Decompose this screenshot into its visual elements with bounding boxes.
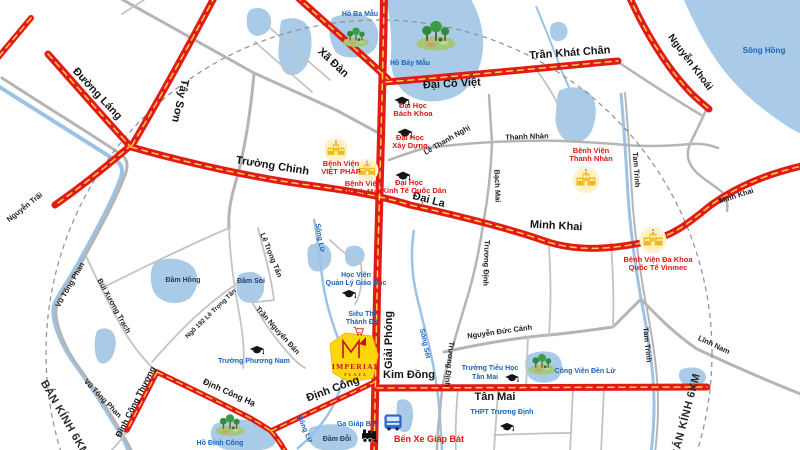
water-label-song-hong: Sông Hồng [743,46,786,55]
label-tieu-hoc-tan-mai-line2: Tân Mai [472,374,498,381]
label-tieu-hoc-tan-mai-line1: Trường Tiểu Học [462,364,519,372]
label-imperial: IMPERIAL [332,362,380,371]
hospital-vinmec-icon [640,227,667,254]
road-label-giai-phong: Giải Phóng [383,311,395,369]
label-bach-khoa-line2: Bách Khoa [393,109,433,118]
lake-dam-soi [236,272,264,303]
label-viet-phap-line2: VIỆT PHÁP [321,167,361,176]
hospital-thanh-nhan-icon [573,167,600,194]
dash-kim-dong [377,387,707,388]
label-truong-phuong-nam: Trường Phương Nam [218,358,290,365]
label-hoc-vien-line2: Quản Lý Giáo Dục [326,280,387,287]
bus-station-icon [385,415,401,431]
water-label-dam-hong: Đầm Hồng [166,275,201,284]
water-label-ho-ba-mau: Hồ Ba Mẫu [342,9,378,18]
label-ben-xe-giap-bat: Bến Xe Giáp Bát [394,434,464,444]
road-label-truong-dinh-north: Trương Định [481,240,492,286]
water-label-ho-bay-mau: Hồ Bảy Mẫu [390,58,430,67]
label-vinmec-line2: Quốc Tế Vinmec [629,263,688,272]
road-label-tan-mai: Tân Mai [475,391,516,403]
label-xay-dung-line2: Xây Dựng [392,141,428,150]
hanoi-area-map: Đường Láng Tây Sơn Nguyễn Trãi Trường Ch… [0,0,800,450]
label-thpt-truong-dinh: THPT Trương Định [471,409,534,416]
road-label-bach-mai: Bạch Mai [492,169,502,202]
label-bv-thanh-nhan-line2: Thanh Nhàn [569,154,613,163]
water-label-dam-soi: Đầm Sòi [237,276,265,285]
train-station-icon [362,430,378,443]
map-canvas: Đường Láng Tây Sơn Nguyễn Trãi Trường Ch… [0,0,800,450]
water-label-ho-dinh-cong: Hồ Định Công [197,438,244,447]
label-sieu-thi-line1: Siêu Thị [348,311,375,318]
label-kinh-te-line2: Kinh Tế Quốc Dân [381,186,446,195]
water-label-dam-doi: Đầm Đỗi [323,434,351,443]
label-bv-bach-mai-line2: Bạch Mai [347,187,380,196]
label-ga-giap-bat: Ga Giáp Bát [337,421,378,428]
road-label-kim-dong: Kim Đồng [383,369,435,381]
road-label-thanh-nhan: Thanh Nhàn [505,131,549,142]
label-imperial-plaza: PLAZA [344,372,368,377]
label-hoc-vien-line1: Học Viện [341,272,371,279]
label-sieu-thi-line2: Thành Đô [346,319,378,326]
label-cong-vien-den-lu: Công Viên Đền Lừ [555,366,617,375]
